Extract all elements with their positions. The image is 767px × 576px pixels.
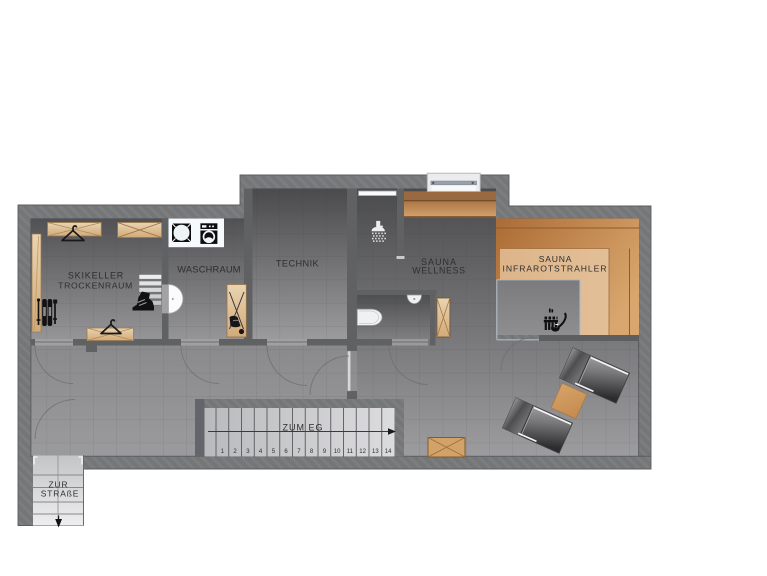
svg-text:14: 14 bbox=[385, 449, 392, 455]
svg-text:WASCHRAUM: WASCHRAUM bbox=[177, 265, 240, 275]
svg-text:10: 10 bbox=[334, 449, 341, 455]
svg-text:TECHNIK: TECHNIK bbox=[276, 259, 320, 269]
svg-text:STRAßE: STRAßE bbox=[41, 489, 79, 499]
svg-text:SKIKELLER: SKIKELLER bbox=[68, 271, 124, 281]
svg-text:11: 11 bbox=[347, 449, 354, 455]
svg-text:WELLNESS: WELLNESS bbox=[412, 266, 466, 276]
svg-text:TROCKENRAUM: TROCKENRAUM bbox=[58, 281, 133, 291]
svg-text:SAUNA: SAUNA bbox=[539, 254, 573, 264]
svg-text:INFRAROTSTRAHLER: INFRAROTSTRAHLER bbox=[503, 264, 608, 274]
svg-text:ZUM EG: ZUM EG bbox=[283, 423, 324, 433]
svg-text:12: 12 bbox=[359, 449, 366, 455]
svg-text:13: 13 bbox=[372, 449, 379, 455]
